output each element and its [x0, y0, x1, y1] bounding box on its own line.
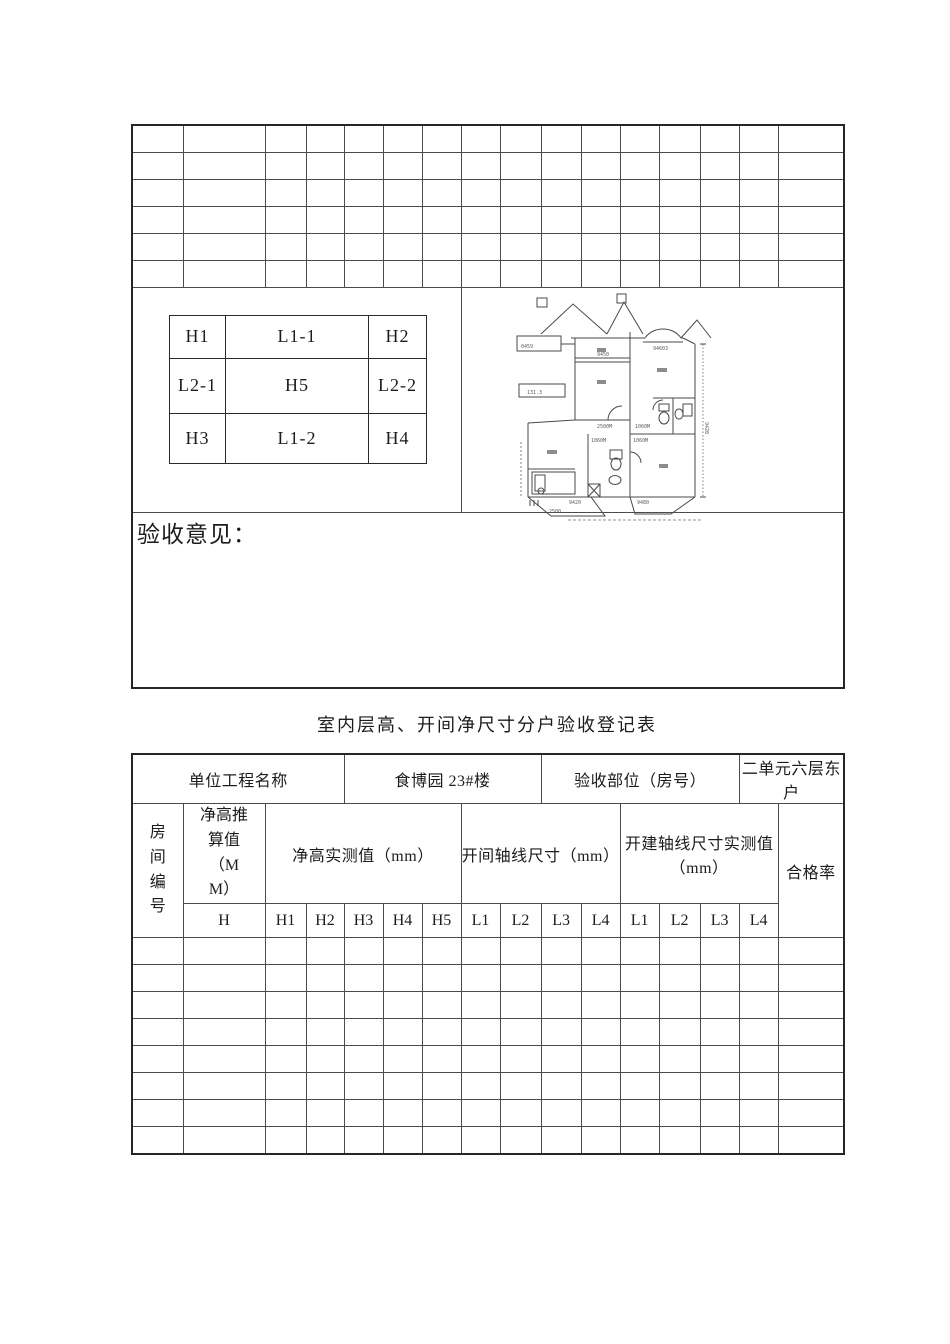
page-title: 室内层高、开间净尺寸分户验收登记表 [131, 711, 843, 737]
empty-cell [778, 1073, 844, 1100]
empty-cell [778, 179, 844, 206]
empty-cell [659, 206, 700, 233]
roof-line [541, 304, 607, 334]
empty-cell [581, 1046, 620, 1073]
empty-cell [739, 992, 778, 1019]
empty-cell [659, 179, 700, 206]
empty-cell [620, 965, 659, 992]
empty-cell [344, 1019, 383, 1046]
room-label-blob [597, 380, 606, 384]
empty-cell [659, 260, 700, 287]
col-header-L2-measured: L2 [659, 904, 700, 938]
empty-cell [739, 179, 778, 206]
empty-row [132, 179, 844, 206]
empty-cell [461, 206, 500, 233]
empty-cell [344, 179, 383, 206]
room-number-label: 房间编号 [149, 821, 167, 920]
empty-cell [739, 125, 778, 152]
empty-cell [306, 992, 344, 1019]
empty-cell [344, 1073, 383, 1100]
empty-cell [500, 938, 541, 965]
empty-cell [383, 260, 422, 287]
empty-cell [620, 992, 659, 1019]
empty-cell [500, 1073, 541, 1100]
empty-cell [265, 938, 306, 965]
empty-cell [700, 179, 739, 206]
empty-cell [541, 179, 581, 206]
pass-rate-header: 合格率 [778, 804, 844, 938]
toilet-bowl [611, 458, 621, 470]
empty-cell [581, 206, 620, 233]
empty-cell [581, 1127, 620, 1154]
empty-cell [620, 152, 659, 179]
empty-cell [461, 1073, 500, 1100]
empty-cell [265, 1073, 306, 1100]
col-header-L4: L4 [581, 904, 620, 938]
empty-cell [422, 233, 461, 260]
roof-line [681, 320, 711, 338]
dim-label: 9450 [597, 352, 609, 358]
empty-cell [306, 125, 344, 152]
h-matrix-cell-3: L2-1 [170, 358, 226, 413]
empty-cell [659, 1073, 700, 1100]
empty-cell [132, 233, 183, 260]
empty-row [132, 938, 844, 965]
empty-cell [739, 965, 778, 992]
empty-cell [132, 938, 183, 965]
empty-cell [700, 152, 739, 179]
empty-cell [778, 1100, 844, 1127]
empty-cell [739, 152, 778, 179]
empty-cell [344, 152, 383, 179]
empty-cell [700, 125, 739, 152]
empty-cell [461, 992, 500, 1019]
empty-cell [422, 992, 461, 1019]
empty-cell [778, 206, 844, 233]
h-matrix-cell-6: H3 [170, 413, 226, 463]
toilet-bowl [659, 412, 669, 424]
empty-cell [344, 1100, 383, 1127]
empty-cell [383, 965, 422, 992]
lower-form-table: 单位工程名称 食博园 23#楼 验收部位（房号） 二单元六层东户 房间编号 净高… [131, 753, 845, 1155]
sink [683, 404, 692, 416]
empty-cell [183, 125, 265, 152]
empty-cell [461, 1019, 500, 1046]
empty-cell [659, 1100, 700, 1127]
net-height-calc-label: 净高推算值（MM） [198, 804, 250, 903]
dim-label: 2500 [549, 509, 561, 515]
empty-cell [739, 1127, 778, 1154]
empty-cell [500, 992, 541, 1019]
empty-cell [659, 992, 700, 1019]
empty-cell [183, 1127, 265, 1154]
empty-cell [461, 1127, 500, 1154]
dim-label: 9420 [703, 422, 709, 434]
empty-cell [620, 938, 659, 965]
empty-cell [541, 1127, 581, 1154]
empty-cell [422, 1073, 461, 1100]
empty-cell [183, 1100, 265, 1127]
empty-cell [461, 233, 500, 260]
empty-cell [778, 125, 844, 152]
empty-row [132, 1127, 844, 1154]
empty-cell [383, 1019, 422, 1046]
empty-cell [500, 1127, 541, 1154]
dim-label: 9480 [637, 500, 649, 506]
empty-cell [132, 1046, 183, 1073]
col-header-L1-measured: L1 [620, 904, 659, 938]
bay-axis-header: 开间轴线尺寸（mm） [461, 804, 620, 904]
empty-cell [422, 1100, 461, 1127]
empty-cell [739, 206, 778, 233]
empty-cell [383, 1046, 422, 1073]
empty-cell [183, 992, 265, 1019]
empty-cell [265, 260, 306, 287]
empty-cell [778, 1046, 844, 1073]
empty-cell [778, 152, 844, 179]
col-header-L3: L3 [541, 904, 581, 938]
acceptance-opinion-cell: 验收意见： [132, 512, 844, 688]
h-matrix-cell-5: L2-2 [369, 358, 427, 413]
empty-cell [183, 965, 265, 992]
empty-cell [739, 260, 778, 287]
dim-label: 9420 [569, 500, 581, 506]
header-row-sub: H H1 H2 H3 H4 H5 L1 L2 L3 L4 L1 L2 L3 L4 [132, 904, 844, 938]
empty-cell [659, 1046, 700, 1073]
empty-cell [541, 206, 581, 233]
empty-cell [265, 179, 306, 206]
empty-cell [700, 260, 739, 287]
empty-cell [132, 125, 183, 152]
h-code-matrix: H1 L1-1 H2 L2-1 H5 L2-2 H3 L1-2 H4 [169, 315, 427, 464]
empty-cell [500, 1046, 541, 1073]
empty-cell [541, 260, 581, 287]
empty-cell [344, 1127, 383, 1154]
empty-cell [461, 938, 500, 965]
empty-cell [541, 152, 581, 179]
door-arc [630, 452, 641, 463]
empty-cell [265, 1127, 306, 1154]
empty-cell [778, 1019, 844, 1046]
dim-label: 1060M [591, 438, 606, 444]
dim-label: 1060M [635, 424, 650, 430]
empty-cell [461, 1100, 500, 1127]
empty-cell [265, 206, 306, 233]
col-header-L1: L1 [461, 904, 500, 938]
empty-cell [132, 260, 183, 287]
stair-ticks [530, 500, 538, 506]
empty-cell [344, 992, 383, 1019]
empty-cell [183, 152, 265, 179]
empty-cell [265, 233, 306, 260]
sink [609, 476, 621, 485]
info-row: 单位工程名称 食博园 23#楼 验收部位（房号） 二单元六层东户 [132, 754, 844, 804]
empty-cell [132, 152, 183, 179]
empty-cell [500, 233, 541, 260]
empty-cell [306, 233, 344, 260]
empty-cell [344, 206, 383, 233]
toilet-tank [659, 404, 669, 411]
room-label-blob [659, 464, 668, 468]
empty-cell [659, 1127, 700, 1154]
room-number-header: 房间编号 [132, 804, 183, 938]
empty-cell [422, 1127, 461, 1154]
empty-cell [620, 260, 659, 287]
empty-cell [306, 1073, 344, 1100]
empty-cell [422, 179, 461, 206]
empty-cell [581, 938, 620, 965]
empty-cell [344, 938, 383, 965]
col-header-H1: H1 [265, 904, 306, 938]
empty-cell [344, 1046, 383, 1073]
empty-cell [620, 1073, 659, 1100]
empty-cell [500, 206, 541, 233]
empty-cell [265, 992, 306, 1019]
acceptance-opinion-label: 验收意见： [133, 513, 843, 549]
empty-cell [383, 1127, 422, 1154]
empty-cell [541, 992, 581, 1019]
dim-label: 0459 [521, 344, 533, 350]
empty-cell [500, 152, 541, 179]
empty-cell [132, 1019, 183, 1046]
empty-cell [306, 1127, 344, 1154]
empty-cell [620, 233, 659, 260]
roof-line [607, 302, 643, 334]
empty-cell [500, 179, 541, 206]
empty-cell [461, 1046, 500, 1073]
empty-cell [581, 1073, 620, 1100]
empty-cell [306, 1046, 344, 1073]
empty-cell [383, 1073, 422, 1100]
empty-cell [581, 125, 620, 152]
lower-empty-grid [132, 938, 844, 1154]
empty-cell [541, 125, 581, 152]
door-arc [653, 400, 663, 410]
empty-cell [620, 125, 659, 152]
empty-cell [183, 1046, 265, 1073]
empty-row [132, 992, 844, 1019]
empty-cell [700, 992, 739, 1019]
empty-cell [620, 1100, 659, 1127]
empty-cell [383, 125, 422, 152]
empty-cell [659, 125, 700, 152]
empty-cell [581, 260, 620, 287]
empty-cell [265, 1100, 306, 1127]
empty-cell [422, 965, 461, 992]
empty-cell [183, 1019, 265, 1046]
empty-cell [183, 206, 265, 233]
col-header-L2: L2 [500, 904, 541, 938]
empty-cell [778, 938, 844, 965]
empty-cell [183, 233, 265, 260]
empty-cell [581, 179, 620, 206]
empty-cell [581, 1019, 620, 1046]
document-page: H1 L1-1 H2 L2-1 H5 L2-2 H3 L1-2 H4 [0, 0, 950, 1344]
dim-label: 131.3 [527, 390, 542, 396]
h-matrix-cell-7: L1-2 [226, 413, 369, 463]
unit-project-label: 单位工程名称 [132, 754, 344, 804]
h-matrix-cell-8: H4 [369, 413, 427, 463]
empty-cell [700, 1073, 739, 1100]
empty-cell [659, 1019, 700, 1046]
col-header-L4-measured: L4 [739, 904, 778, 938]
empty-cell [778, 233, 844, 260]
empty-cell [422, 1019, 461, 1046]
empty-cell [306, 965, 344, 992]
empty-cell [659, 938, 700, 965]
empty-cell [461, 965, 500, 992]
empty-cell [739, 1100, 778, 1127]
empty-row [132, 1019, 844, 1046]
empty-cell [306, 1100, 344, 1127]
room-label-blob [547, 450, 557, 454]
empty-cell [700, 938, 739, 965]
empty-cell [422, 260, 461, 287]
empty-cell [132, 1073, 183, 1100]
empty-cell [500, 1100, 541, 1127]
empty-cell [306, 179, 344, 206]
empty-cell [778, 1127, 844, 1154]
empty-cell [383, 992, 422, 1019]
empty-cell [183, 260, 265, 287]
empty-cell [422, 1046, 461, 1073]
empty-cell [500, 965, 541, 992]
empty-cell [500, 1019, 541, 1046]
empty-cell [778, 965, 844, 992]
empty-cell [500, 260, 541, 287]
empty-cell [700, 1046, 739, 1073]
h-matrix-cell: H1 L1-1 H2 L2-1 H5 L2-2 H3 L1-2 H4 [132, 287, 461, 512]
empty-row [132, 233, 844, 260]
empty-cell [581, 992, 620, 1019]
col-header-H2: H2 [306, 904, 344, 938]
empty-cell [132, 179, 183, 206]
empty-cell [383, 233, 422, 260]
empty-cell [620, 1127, 659, 1154]
empty-cell [581, 1100, 620, 1127]
empty-cell [306, 1019, 344, 1046]
roof-stub [537, 298, 547, 307]
floor-plan: 0459 9450 94603 131.3 2500M 1060M 1060M … [513, 292, 731, 532]
dim-label: 94603 [653, 346, 668, 352]
empty-cell [383, 1100, 422, 1127]
empty-cell [700, 1019, 739, 1046]
empty-cell [383, 206, 422, 233]
empty-row [132, 125, 844, 152]
empty-cell [306, 260, 344, 287]
empty-cell [306, 206, 344, 233]
empty-cell [620, 206, 659, 233]
door-arc [608, 406, 622, 420]
empty-cell [265, 965, 306, 992]
dim-label: 1060M [633, 438, 648, 444]
empty-cell [422, 125, 461, 152]
h-matrix-cell-2: H2 [369, 315, 427, 358]
empty-row [132, 206, 844, 233]
balcony-outline [528, 497, 605, 516]
matrix-and-plan-row: H1 L1-1 H2 L2-1 H5 L2-2 H3 L1-2 H4 [132, 287, 844, 512]
empty-cell [541, 938, 581, 965]
empty-cell [183, 179, 265, 206]
empty-row [132, 1100, 844, 1127]
empty-cell [541, 1019, 581, 1046]
empty-cell [778, 992, 844, 1019]
empty-cell [620, 1046, 659, 1073]
empty-cell [461, 179, 500, 206]
empty-cell [344, 233, 383, 260]
bay-axis-measured-header: 开建轴线尺寸实测值（mm） [620, 804, 778, 904]
empty-cell [461, 152, 500, 179]
empty-cell [265, 1019, 306, 1046]
empty-cell [581, 152, 620, 179]
empty-cell [739, 938, 778, 965]
empty-cell [344, 260, 383, 287]
empty-cell [344, 125, 383, 152]
col-header-H3: H3 [344, 904, 383, 938]
empty-cell [700, 965, 739, 992]
upper-empty-grid [132, 125, 844, 287]
empty-cell [132, 1100, 183, 1127]
empty-cell [778, 260, 844, 287]
empty-row [132, 1073, 844, 1100]
empty-cell [306, 938, 344, 965]
empty-row [132, 1046, 844, 1073]
empty-cell [541, 233, 581, 260]
empty-cell [700, 1100, 739, 1127]
empty-row [132, 152, 844, 179]
empty-cell [422, 206, 461, 233]
dimension-double-line [575, 358, 630, 362]
empty-cell [659, 152, 700, 179]
dim-label: 2500M [597, 424, 612, 430]
h-matrix-cell-4: H5 [226, 358, 369, 413]
closet-cross [588, 484, 600, 497]
col-header-L3-measured: L3 [700, 904, 739, 938]
header-row-groups: 房间编号 净高推算值（MM） 净高实测值（mm） 开间轴线尺寸（mm） 开建轴线… [132, 804, 844, 904]
empty-cell [461, 260, 500, 287]
bay-window-arch [645, 329, 681, 338]
col-header-H4: H4 [383, 904, 422, 938]
roof-stub [617, 294, 626, 303]
room-label-blob [657, 368, 667, 372]
empty-cell [659, 233, 700, 260]
net-height-measured-header: 净高实测值（mm） [265, 804, 461, 904]
upper-form-table: H1 L1-1 H2 L2-1 H5 L2-2 H3 L1-2 H4 [131, 124, 845, 689]
empty-cell [739, 1046, 778, 1073]
opinion-row: 验收意见： [132, 512, 844, 688]
empty-cell [132, 1127, 183, 1154]
h-matrix-cell-1: L1-1 [226, 315, 369, 358]
empty-row [132, 965, 844, 992]
empty-cell [581, 965, 620, 992]
empty-cell [383, 152, 422, 179]
acceptance-part-label: 验收部位（房号） [541, 754, 739, 804]
acceptance-part-value: 二单元六层东户 [739, 754, 844, 804]
empty-cell [265, 125, 306, 152]
empty-cell [183, 1073, 265, 1100]
empty-row [132, 260, 844, 287]
empty-cell [132, 206, 183, 233]
col-header-H: H [183, 904, 265, 938]
empty-cell [700, 233, 739, 260]
empty-cell [132, 992, 183, 1019]
h-matrix-cell-0: H1 [170, 315, 226, 358]
empty-cell [541, 1046, 581, 1073]
empty-cell [265, 1046, 306, 1073]
empty-cell [500, 125, 541, 152]
empty-cell [422, 152, 461, 179]
empty-cell [620, 179, 659, 206]
